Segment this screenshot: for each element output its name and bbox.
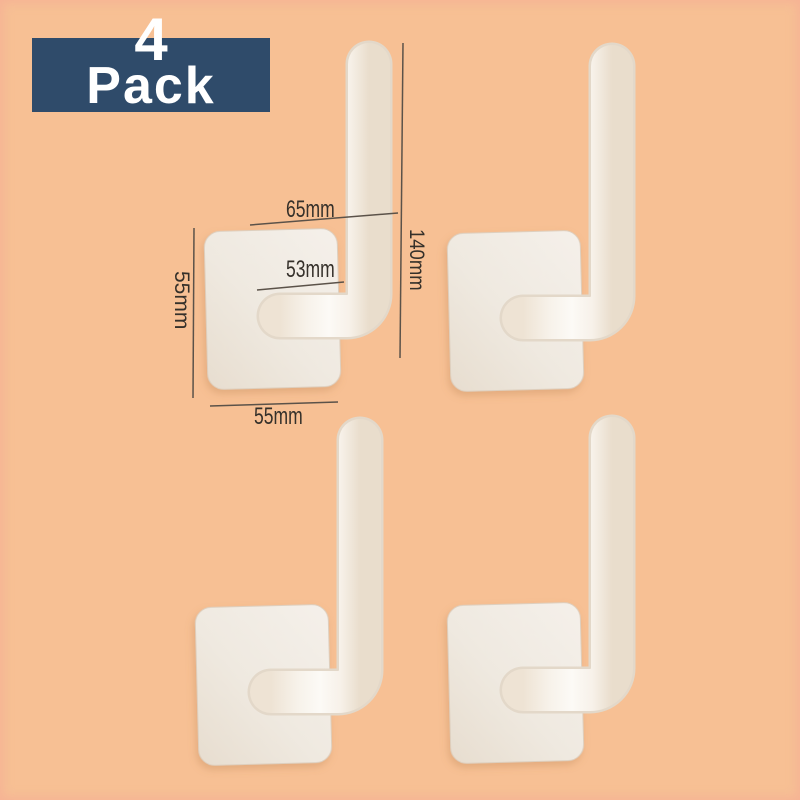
dim-label-inner-width: 53mm [286,258,335,282]
hook-bottom-right [447,438,612,764]
hook-top-right [447,66,612,392]
hook-bottom-left [195,440,360,766]
dim-label-top-width: 65mm [286,198,335,222]
pack-label: Pack [32,60,270,112]
dim-label-side-height: 55mm [170,271,193,329]
pack-badge: 4 Pack [32,38,270,112]
measure-line-total-height [400,43,403,358]
hooks-illustration [0,0,800,800]
product-photo: 4 Pack 65mm 53mm 55mm 55mm 140mm [0,0,800,800]
measure-line-side-height [193,228,194,398]
hook-top-left [204,64,369,390]
dim-label-bottom-width: 55mm [254,405,303,429]
dim-label-total-height: 140mm [405,229,428,291]
